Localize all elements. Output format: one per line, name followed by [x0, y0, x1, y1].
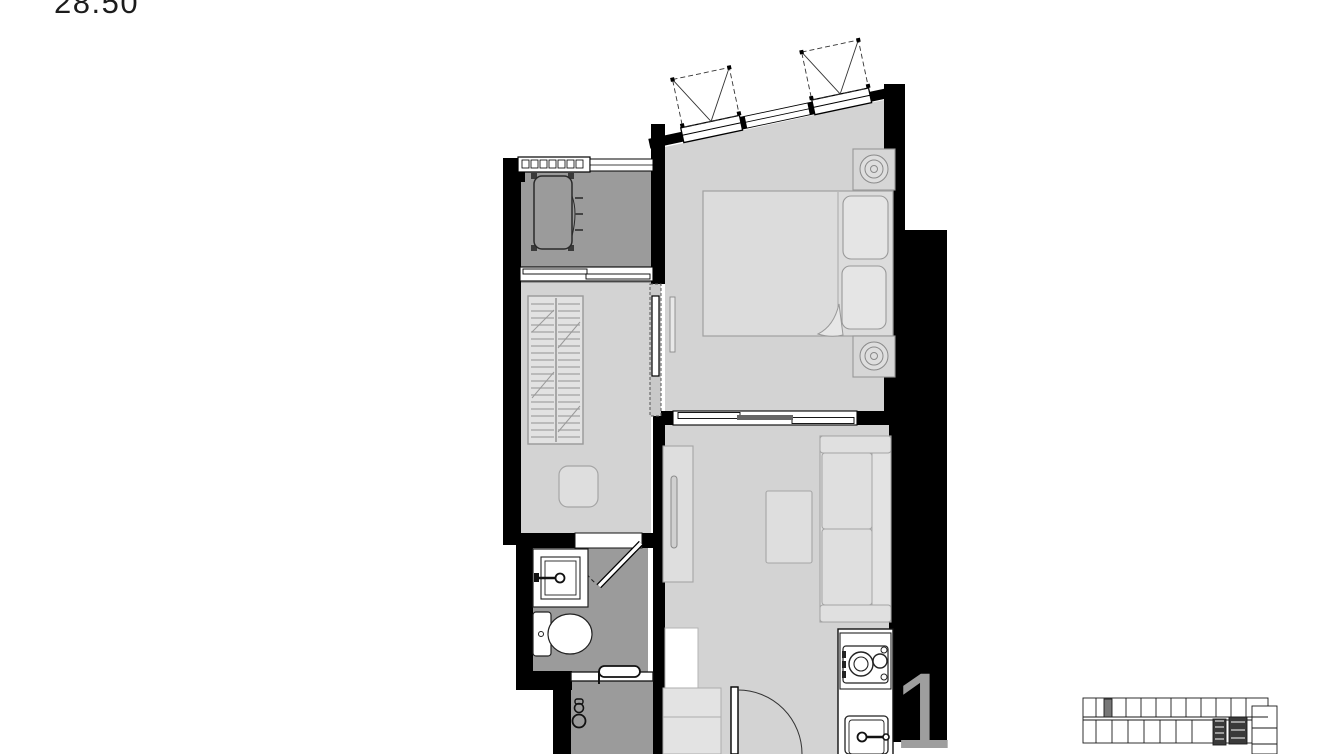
keyplan-core — [1213, 717, 1247, 745]
pillow-2 — [842, 266, 886, 329]
sofa-seat-1 — [822, 453, 872, 529]
faucet-handle — [556, 574, 565, 583]
shower-floor — [571, 681, 653, 754]
wall-bathroom-left — [516, 533, 533, 676]
mirror — [670, 297, 675, 352]
wall-bathroom-top-left — [516, 533, 577, 548]
pocket-sliding-door — [650, 284, 661, 416]
partition-overlap-panel — [737, 415, 793, 420]
appliance-space — [665, 628, 698, 688]
balcony-sliding-window — [520, 267, 653, 281]
partition-sliding-window — [673, 411, 857, 425]
sofa — [820, 436, 891, 622]
entrance-door-leaf — [731, 687, 738, 754]
tv — [671, 476, 677, 548]
sofa-arm-bottom — [820, 605, 891, 622]
wall-left — [503, 158, 521, 545]
kitchen-faucet — [858, 733, 867, 742]
toilet-bowl — [548, 614, 592, 654]
keyplan-service-cell — [1104, 699, 1112, 717]
keyplan-right-wing — [1252, 706, 1277, 754]
tv-cabinet — [663, 446, 693, 582]
wall-right-band-upper — [905, 230, 947, 425]
toilet — [533, 612, 592, 656]
wall-shower-left — [553, 690, 571, 754]
kitchen — [838, 629, 893, 754]
pillow-1 — [843, 196, 888, 259]
sofa-seat-2 — [822, 529, 872, 605]
floor-plan-page: 28.50 — [0, 0, 1342, 754]
unit-number-watermark: 1 — [893, 650, 953, 754]
shoe-cabinet — [663, 688, 721, 754]
stool — [559, 466, 598, 507]
nightstand-top — [853, 149, 895, 190]
kitchen-sink — [845, 716, 889, 754]
wardrobe — [528, 296, 583, 444]
sofa-arm-top — [820, 436, 891, 453]
bathroom-doorway — [575, 533, 642, 548]
building-key-plan — [1083, 698, 1277, 754]
shower-door-handle — [599, 666, 640, 677]
floor-plan-svg: 1 — [0, 0, 1342, 754]
bed — [703, 191, 893, 336]
sofa-back — [872, 450, 891, 606]
nightstand-bottom — [853, 336, 895, 377]
stove — [840, 633, 891, 689]
coffee-table — [766, 491, 812, 563]
bathroom-sink — [533, 549, 588, 607]
wall-bathroom-bottom — [516, 671, 572, 690]
